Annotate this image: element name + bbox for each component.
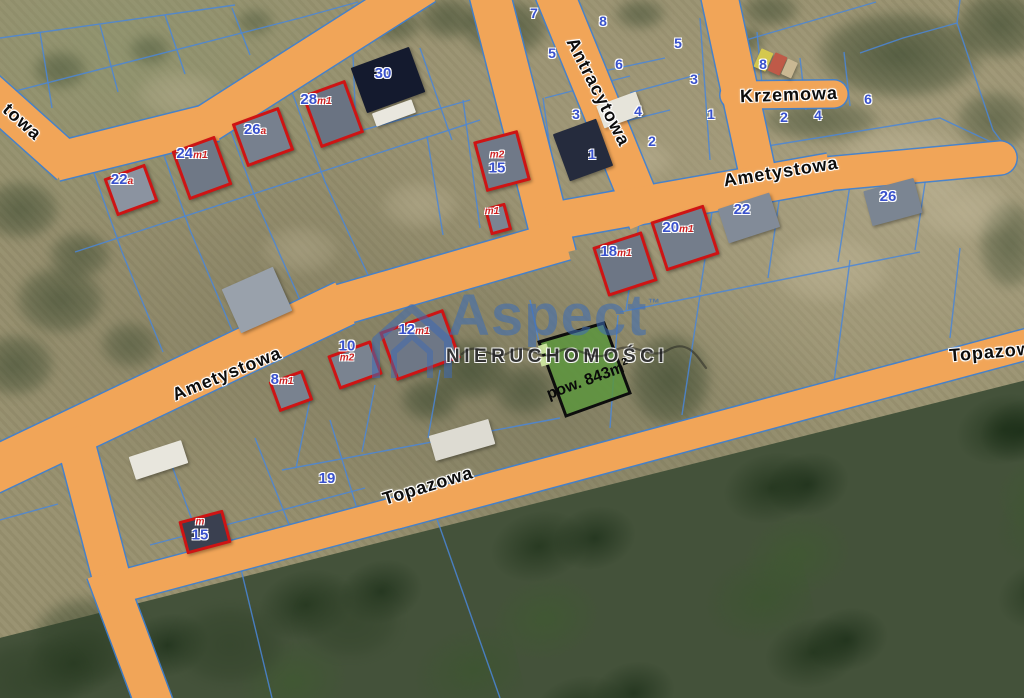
parcel-boundary-line: [834, 260, 850, 382]
parcel-number: 3: [690, 71, 698, 87]
building-suffix: m1: [317, 96, 331, 107]
parcel-number: 4: [814, 107, 822, 123]
parcel-number: 1: [588, 146, 596, 162]
building-number: 15: [192, 528, 209, 543]
building-number: 22: [111, 171, 128, 188]
parcel-number: 2: [780, 109, 788, 125]
building-number: 28: [300, 91, 317, 108]
parcel-boundary-line: [362, 385, 375, 452]
parcel-boundary-line: [746, 2, 876, 40]
parcel-boundary-line: [530, 300, 539, 342]
building-suffix: m1: [679, 224, 693, 235]
parcel-boundary-line: [700, 18, 710, 160]
building-number-label: 8m1: [271, 372, 294, 388]
parcel-boundary-line: [325, 182, 368, 275]
building-number-label: 22: [734, 202, 751, 218]
building-number: 20: [662, 219, 679, 236]
building-suffix: m1: [617, 248, 631, 259]
parcel-number: 6: [864, 91, 872, 107]
parcel-boundary-line: [682, 295, 700, 415]
building-number-label: m15: [192, 518, 209, 543]
building-number: 26: [880, 188, 897, 205]
road: [825, 158, 1000, 174]
building-number: 26: [244, 121, 261, 138]
parcel-number: 6: [615, 56, 623, 72]
parcel-boundary-line: [122, 252, 163, 352]
building-number: 22: [734, 201, 751, 218]
road: [100, 512, 400, 592]
parcel-boundary-line: [330, 420, 358, 512]
parcel-number: 2: [648, 133, 656, 149]
parcel-boundary-line: [432, 505, 500, 698]
parcel-number: 8: [599, 13, 607, 29]
parcel-boundary-line: [240, 565, 272, 698]
building-suffix: m1: [415, 326, 429, 337]
parcel-boundary-line: [428, 370, 440, 438]
parcel-boundary-line: [296, 400, 310, 468]
building-suffix: m1: [279, 376, 293, 387]
building-number: 18: [600, 243, 617, 260]
parcel-boundary-line: [190, 230, 232, 330]
parcel-boundary-line: [957, 23, 1008, 150]
building-number-label: 19: [319, 471, 336, 487]
building-number: 15: [489, 161, 506, 176]
building-number-label: 22a: [111, 172, 133, 188]
building-number-label: 28m1: [300, 92, 331, 108]
building-number-label: m1: [485, 202, 499, 218]
parcel-boundary-line: [0, 504, 58, 520]
building-number-label: 26a: [244, 122, 266, 138]
parcel-boundary-line: [427, 136, 443, 235]
parcel-number: 1: [707, 106, 715, 122]
building-number: 12: [398, 321, 415, 338]
parcel-boundary-line: [100, 25, 118, 92]
building-suffix: m1: [485, 206, 499, 217]
building-suffix: m1: [193, 150, 207, 161]
building-number: 10: [339, 339, 356, 354]
building-number: 19: [319, 470, 336, 487]
parcel-number: 5: [548, 45, 556, 61]
building-number-label: 30: [375, 66, 392, 82]
building-number-label: 26: [880, 189, 897, 205]
building-number-label: 20m1: [662, 220, 693, 236]
building-number-label: m215: [489, 151, 506, 176]
building-number-label: 18m1: [600, 244, 631, 260]
parcel-number: 3: [572, 106, 580, 122]
building-number-label: 24m1: [176, 146, 207, 162]
road: [340, 240, 565, 305]
parcel-boundary-line: [463, 100, 480, 228]
parcel-boundary-line: [282, 418, 560, 470]
building-number: 30: [375, 65, 392, 82]
parcel-number: 8: [759, 56, 767, 72]
street-label-krzemowa: Krzemowa: [740, 83, 839, 107]
building-suffix: m2: [339, 354, 356, 364]
parcel-boundary-line: [0, 5, 235, 38]
parcel-boundary-line: [40, 32, 52, 108]
parcel-number: 7: [530, 5, 538, 21]
parcel-boundary-line: [255, 438, 292, 532]
parcel-boundary-line: [860, 0, 960, 53]
building-number: 24: [176, 145, 193, 162]
building-suffix: a: [128, 176, 134, 187]
parcel-boundary-line: [950, 248, 960, 338]
parcel-boundary-line: [420, 48, 452, 140]
road: [72, 428, 112, 580]
building-number-label: 12m1: [398, 322, 429, 338]
parcel-boundary-line: [165, 15, 185, 74]
parcel-number: 5: [674, 35, 682, 51]
building-number-label: 10m2: [339, 339, 356, 364]
parcel-number: 4: [634, 103, 642, 119]
building-suffix: a: [261, 126, 267, 137]
aerial-cadastral-map: Aspect ™ NIERUCHOMOŚCI pow. 843m2 towaAn…: [0, 0, 1024, 698]
